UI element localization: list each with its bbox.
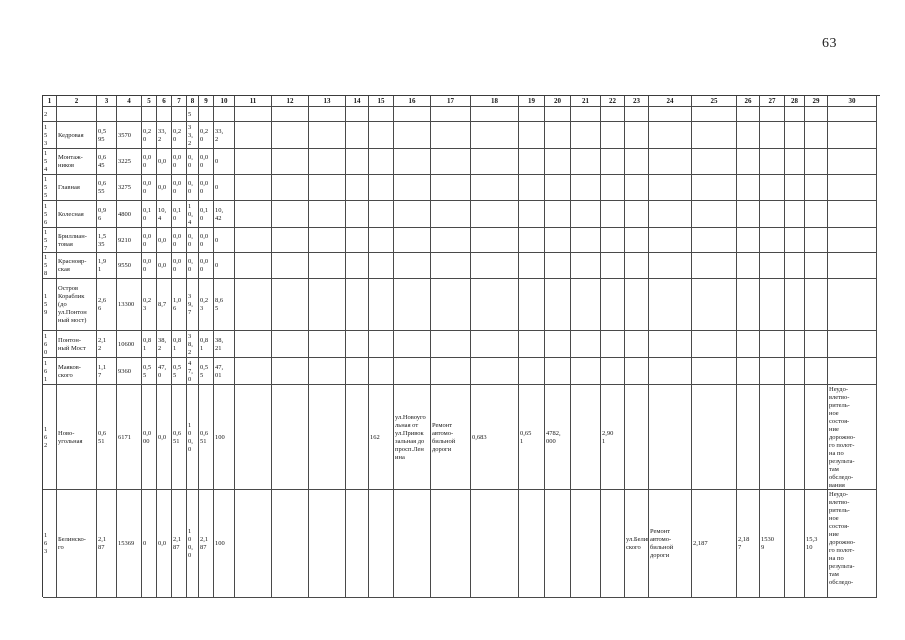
- table-cell: [760, 201, 785, 228]
- table-cell: [545, 107, 571, 122]
- table-cell: [519, 122, 545, 149]
- table-cell: [601, 228, 625, 253]
- table-cell: 0,2 3: [142, 279, 157, 331]
- row-number-cell: 1 6 2: [43, 385, 57, 490]
- table-cell: [692, 228, 737, 253]
- table-cell: [235, 107, 272, 122]
- table-cell: [571, 175, 601, 201]
- table-cell: 3 8, 2: [187, 331, 199, 358]
- table-cell: [309, 201, 346, 228]
- column-header-17: 17: [431, 96, 471, 107]
- table-cell: [545, 149, 571, 175]
- table-cell: [346, 385, 369, 490]
- street-name-cell: Остров Кораблик (до ул.Понтон ный мост): [57, 279, 97, 331]
- row-number-cell: 1 6 0: [43, 331, 57, 358]
- table-cell: [235, 358, 272, 385]
- table-cell: [272, 228, 309, 253]
- table-cell: 0,6 51: [199, 385, 214, 490]
- table-cell: 0, 0: [187, 149, 199, 175]
- table-cell: [760, 358, 785, 385]
- table-cell: [272, 253, 309, 279]
- street-name-cell: Понтон- ный Мост: [57, 331, 97, 358]
- table-cell: 0,0: [157, 253, 172, 279]
- column-header-21: 21: [571, 96, 601, 107]
- table-cell: [431, 149, 471, 175]
- table-cell: 0,0: [157, 228, 172, 253]
- table-cell: [431, 490, 471, 598]
- table-cell: [601, 253, 625, 279]
- table-cell: [785, 107, 805, 122]
- table-cell: 38, 21: [214, 331, 235, 358]
- table-cell: 0,0 0: [172, 149, 187, 175]
- table-cell: [601, 331, 625, 358]
- table-cell: [785, 385, 805, 490]
- table-cell: 0,2 0: [199, 122, 214, 149]
- table-cell: [199, 107, 214, 122]
- table-cell: 0, 0: [187, 228, 199, 253]
- table-cell: [431, 175, 471, 201]
- table-cell: [394, 175, 431, 201]
- table-cell: [805, 149, 828, 175]
- table-cell: 9210: [117, 228, 142, 253]
- table-cell: 0,0 0: [142, 175, 157, 201]
- table-cell: 13300: [117, 279, 142, 331]
- column-header-2: 2: [57, 96, 97, 107]
- table-cell: 2,1 87: [199, 490, 214, 598]
- table-cell: [649, 149, 692, 175]
- table-cell: [760, 228, 785, 253]
- table-cell: [309, 122, 346, 149]
- column-header-7: 7: [172, 96, 187, 107]
- column-header-27: 27: [760, 96, 785, 107]
- table-cell: [625, 228, 649, 253]
- table-cell: [785, 331, 805, 358]
- table-cell: [649, 228, 692, 253]
- table-cell: [369, 107, 394, 122]
- table-cell: [625, 175, 649, 201]
- table-cell: 0: [214, 228, 235, 253]
- table-cell: [828, 279, 877, 331]
- column-header-11: 11: [235, 96, 272, 107]
- column-header-18: 18: [471, 96, 519, 107]
- table-cell: [760, 279, 785, 331]
- table-cell: [346, 331, 369, 358]
- column-header-12: 12: [272, 96, 309, 107]
- table-cell: [805, 201, 828, 228]
- table-cell: 100: [214, 385, 235, 490]
- table-cell: [601, 175, 625, 201]
- table-cell: 2,187: [692, 490, 737, 598]
- table-cell: [785, 175, 805, 201]
- table-cell: [235, 175, 272, 201]
- table-cell: [571, 122, 601, 149]
- column-header-10: 10: [214, 96, 235, 107]
- table-cell: [272, 149, 309, 175]
- table-cell: [737, 279, 760, 331]
- table-cell: [692, 279, 737, 331]
- table-cell: [369, 201, 394, 228]
- table-cell: [737, 331, 760, 358]
- table-cell: [142, 107, 157, 122]
- table-cell: [519, 331, 545, 358]
- row-number-cell: 1 6 1: [43, 358, 57, 385]
- table-cell: 0,6 45: [97, 149, 117, 175]
- table-cell: 0,0 0: [199, 149, 214, 175]
- column-header-9: 9: [199, 96, 214, 107]
- table-cell: [571, 201, 601, 228]
- table-cell: [737, 228, 760, 253]
- table-cell: 0,2 0: [142, 122, 157, 149]
- table-cell: 0: [214, 175, 235, 201]
- table-cell: [828, 331, 877, 358]
- table-cell: [649, 385, 692, 490]
- table-cell: [235, 253, 272, 279]
- table-cell: [692, 175, 737, 201]
- table-cell: 0,0 0: [199, 175, 214, 201]
- table-cell: [805, 107, 828, 122]
- table-cell: [235, 122, 272, 149]
- results-table: 1234567891011121314151617181920212223242…: [42, 95, 880, 597]
- table-cell: [828, 107, 877, 122]
- table-cell: [235, 331, 272, 358]
- table-cell: [625, 253, 649, 279]
- table-cell: 0,0: [157, 490, 172, 598]
- table-cell: 0,2 0: [172, 122, 187, 149]
- table-cell: [272, 122, 309, 149]
- table-cell: [625, 149, 649, 175]
- table-cell: 33, 2: [157, 122, 172, 149]
- row-number-cell: 1 5 5: [43, 175, 57, 201]
- table-cell: 3225: [117, 149, 142, 175]
- table-cell: [828, 358, 877, 385]
- table-cell: [346, 175, 369, 201]
- table-cell: 2,90 1: [601, 385, 625, 490]
- table-cell: 8,7: [157, 279, 172, 331]
- row-number-cell: 1 5 4: [43, 149, 57, 175]
- table-cell: 15,3 10: [805, 490, 828, 598]
- table-cell: 0,0 0: [142, 253, 157, 279]
- column-header-8: 8: [187, 96, 199, 107]
- column-header-29: 29: [805, 96, 828, 107]
- table-cell: [760, 175, 785, 201]
- table-cell: [571, 358, 601, 385]
- table-cell: [692, 201, 737, 228]
- table-cell: [545, 253, 571, 279]
- table-cell: [571, 279, 601, 331]
- table-cell: ул.Новоуго льная от ул.Привок зальная до…: [394, 385, 431, 490]
- table-cell: 1,1 7: [97, 358, 117, 385]
- table-cell: [625, 385, 649, 490]
- row-number-cell: 2: [43, 107, 57, 122]
- column-header-26: 26: [737, 96, 760, 107]
- table-cell: 3 9, 7: [187, 279, 199, 331]
- table-cell: [785, 201, 805, 228]
- table-cell: [235, 490, 272, 598]
- table-cell: [519, 107, 545, 122]
- table-cell: 2,1 87: [97, 490, 117, 598]
- table-cell: [649, 331, 692, 358]
- table-cell: 0,5 95: [97, 122, 117, 149]
- table-cell: [309, 385, 346, 490]
- table-cell: [571, 107, 601, 122]
- table-cell: [394, 279, 431, 331]
- column-header-3: 3: [97, 96, 117, 107]
- table-cell: [394, 358, 431, 385]
- column-header-13: 13: [309, 96, 346, 107]
- table-cell: [571, 228, 601, 253]
- table-cell: [649, 122, 692, 149]
- table-cell: [692, 253, 737, 279]
- street-name-cell: Монтаж- ников: [57, 149, 97, 175]
- table-cell: 33, 2: [214, 122, 235, 149]
- table-cell: 10600: [117, 331, 142, 358]
- column-header-16: 16: [394, 96, 431, 107]
- table-cell: [394, 228, 431, 253]
- column-header-24: 24: [649, 96, 692, 107]
- table-cell: [571, 490, 601, 598]
- row-number-cell: 1 5 8: [43, 253, 57, 279]
- table-cell: [737, 253, 760, 279]
- table-cell: 0, 0: [187, 175, 199, 201]
- table-cell: [805, 175, 828, 201]
- table-cell: [601, 490, 625, 598]
- table-cell: 15369: [117, 490, 142, 598]
- table-cell: [369, 175, 394, 201]
- table-cell: 0: [214, 149, 235, 175]
- table-cell: [272, 358, 309, 385]
- table-cell: [785, 490, 805, 598]
- street-name-cell: Кедровая: [57, 122, 97, 149]
- table-cell: 6171: [117, 385, 142, 490]
- table-cell: [431, 279, 471, 331]
- table-cell: [157, 107, 172, 122]
- table-cell: [785, 279, 805, 331]
- table-cell: 0,5 5: [142, 358, 157, 385]
- table-cell: 1,0 6: [172, 279, 187, 331]
- column-header-15: 15: [369, 96, 394, 107]
- table-cell: [805, 331, 828, 358]
- table-cell: [309, 107, 346, 122]
- table-cell: [649, 201, 692, 228]
- table-cell: [309, 149, 346, 175]
- table-cell: [737, 107, 760, 122]
- table-cell: Ремонт автомо- бильной дороги: [649, 490, 692, 598]
- table-cell: [309, 279, 346, 331]
- table-cell: 0,2 3: [199, 279, 214, 331]
- table-cell: [272, 279, 309, 331]
- table-cell: [828, 122, 877, 149]
- table-cell: [545, 490, 571, 598]
- table-cell: 4800: [117, 201, 142, 228]
- table-cell: Неудо- влетво- ритель- ное состоя- ние д…: [828, 385, 877, 490]
- table-cell: 0,0 0: [172, 253, 187, 279]
- table-cell: [369, 228, 394, 253]
- table-cell: [785, 149, 805, 175]
- table-cell: [649, 107, 692, 122]
- table-cell: [431, 201, 471, 228]
- table-cell: [760, 385, 785, 490]
- table-cell: [369, 279, 394, 331]
- table-cell: Неудо- влетво- ритель- ное состоя- ние д…: [828, 490, 877, 598]
- table-cell: [431, 253, 471, 279]
- street-name-cell: Ново- угольная: [57, 385, 97, 490]
- street-name-cell: Главная: [57, 175, 97, 201]
- table-cell: 1,9 1: [97, 253, 117, 279]
- table-cell: 0,1 0: [199, 201, 214, 228]
- row-number-cell: 1 5 7: [43, 228, 57, 253]
- table-cell: 2,1 2: [97, 331, 117, 358]
- column-header-28: 28: [785, 96, 805, 107]
- table-cell: [737, 122, 760, 149]
- column-header-5: 5: [142, 96, 157, 107]
- table-cell: [471, 358, 519, 385]
- table-cell: 0,1 0: [172, 201, 187, 228]
- table-cell: [97, 107, 117, 122]
- table-cell: [545, 279, 571, 331]
- table-cell: 0,0 0: [142, 228, 157, 253]
- table-cell: [737, 149, 760, 175]
- table-cell: 5: [187, 107, 199, 122]
- table-cell: 2,18 7: [737, 490, 760, 598]
- table-cell: 10, 4: [157, 201, 172, 228]
- table-cell: [760, 331, 785, 358]
- table-cell: 0,0: [157, 175, 172, 201]
- table-cell: [649, 175, 692, 201]
- table-cell: [519, 279, 545, 331]
- table-cell: [394, 107, 431, 122]
- table-cell: 0,683: [471, 385, 519, 490]
- table-cell: 8,6 5: [214, 279, 235, 331]
- table-cell: [737, 175, 760, 201]
- table-cell: [369, 358, 394, 385]
- column-header-19: 19: [519, 96, 545, 107]
- page-number: 63: [822, 36, 837, 52]
- table-cell: [625, 358, 649, 385]
- street-name-cell: Белинско- го: [57, 490, 97, 598]
- table-cell: [519, 149, 545, 175]
- table-cell: [601, 107, 625, 122]
- table-cell: [272, 385, 309, 490]
- table-cell: 3275: [117, 175, 142, 201]
- table-cell: [601, 279, 625, 331]
- table-cell: [471, 122, 519, 149]
- table-cell: [571, 385, 601, 490]
- table-cell: [369, 122, 394, 149]
- table-cell: [785, 228, 805, 253]
- table-cell: 0,8 1: [199, 331, 214, 358]
- table-cell: 47, 0: [157, 358, 172, 385]
- table-cell: [760, 253, 785, 279]
- table-cell: [737, 385, 760, 490]
- table-cell: [601, 358, 625, 385]
- table-cell: [309, 490, 346, 598]
- row-number-cell: 1 5 6: [43, 201, 57, 228]
- table-cell: [545, 358, 571, 385]
- table-cell: 9550: [117, 253, 142, 279]
- column-header-6: 6: [157, 96, 172, 107]
- table-cell: [394, 253, 431, 279]
- table-cell: [601, 122, 625, 149]
- table-cell: [369, 331, 394, 358]
- table-cell: [649, 358, 692, 385]
- table-cell: [309, 331, 346, 358]
- table-cell: [471, 331, 519, 358]
- table-cell: [309, 358, 346, 385]
- table-cell: [172, 107, 187, 122]
- table-cell: [214, 107, 235, 122]
- table-cell: [431, 107, 471, 122]
- table-cell: [369, 149, 394, 175]
- table-cell: [346, 490, 369, 598]
- table-cell: [431, 358, 471, 385]
- table-cell: [346, 358, 369, 385]
- table-cell: [692, 122, 737, 149]
- table-cell: [805, 228, 828, 253]
- table-cell: [828, 201, 877, 228]
- table-cell: [545, 122, 571, 149]
- table-cell: [369, 253, 394, 279]
- street-name-cell: Бриллиан- товая: [57, 228, 97, 253]
- table-cell: 0,0 0: [199, 253, 214, 279]
- column-header-22: 22: [601, 96, 625, 107]
- table-cell: 0,6 51: [97, 385, 117, 490]
- table-cell: [235, 385, 272, 490]
- table-cell: [545, 175, 571, 201]
- table-cell: 0,65 1: [519, 385, 545, 490]
- table-cell: [394, 122, 431, 149]
- table-cell: 100: [214, 490, 235, 598]
- table-cell: [760, 122, 785, 149]
- table-cell: 38, 2: [157, 331, 172, 358]
- table-cell: [571, 331, 601, 358]
- table-cell: 0,6 55: [97, 175, 117, 201]
- table-cell: [519, 253, 545, 279]
- table-cell: 0,9 6: [97, 201, 117, 228]
- table-cell: [346, 253, 369, 279]
- table-cell: Ремонт автомо- бильной дороги: [431, 385, 471, 490]
- table-cell: 2,1 87: [172, 490, 187, 598]
- table-cell: [346, 149, 369, 175]
- table-cell: [471, 201, 519, 228]
- table-cell: 0,0: [157, 385, 172, 490]
- street-name-cell: [57, 107, 97, 122]
- table-cell: [309, 175, 346, 201]
- table-cell: [471, 253, 519, 279]
- table-cell: 0: [214, 253, 235, 279]
- table-cell: [394, 331, 431, 358]
- row-number-cell: 1 6 3: [43, 490, 57, 598]
- table-cell: 1530 9: [760, 490, 785, 598]
- table-cell: [471, 107, 519, 122]
- table-cell: [692, 149, 737, 175]
- table-cell: [431, 122, 471, 149]
- table-cell: 2,6 6: [97, 279, 117, 331]
- column-header-4: 4: [117, 96, 142, 107]
- table-cell: [692, 358, 737, 385]
- table-cell: [235, 228, 272, 253]
- table-cell: [394, 149, 431, 175]
- table-cell: [692, 331, 737, 358]
- table-cell: 0,0: [157, 149, 172, 175]
- table-cell: [625, 201, 649, 228]
- table-cell: [471, 279, 519, 331]
- table-cell: 0,0 0: [172, 175, 187, 201]
- table-cell: 0,0 0: [172, 228, 187, 253]
- table-cell: [272, 201, 309, 228]
- table-cell: [309, 253, 346, 279]
- table-cell: [828, 253, 877, 279]
- street-name-cell: Маяков- ского: [57, 358, 97, 385]
